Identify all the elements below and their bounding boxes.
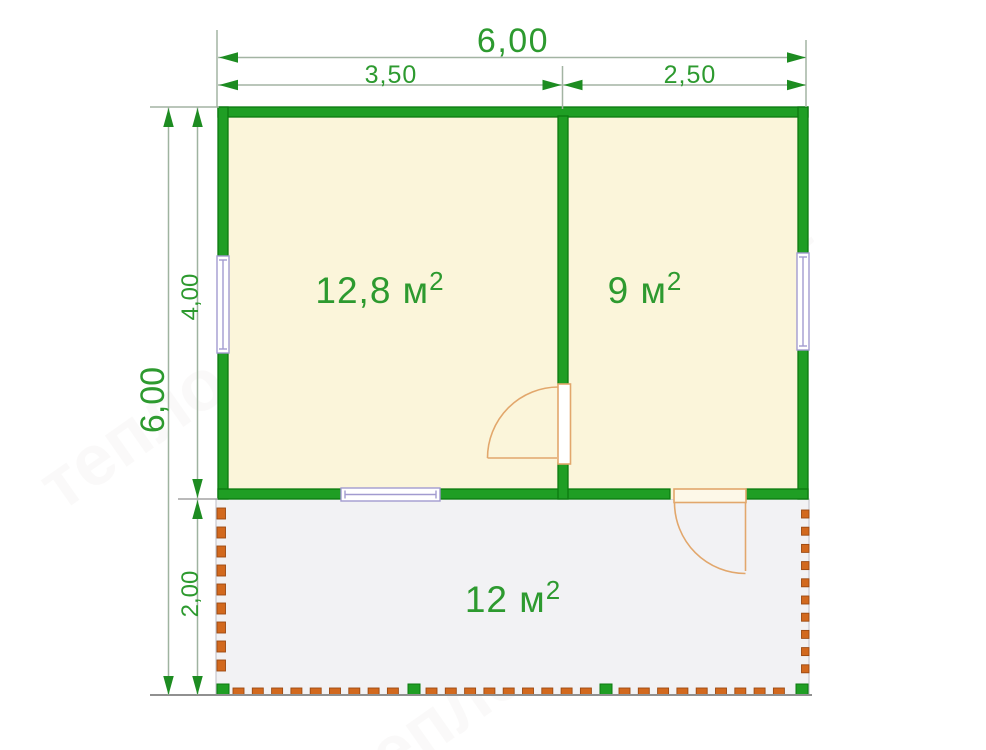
svg-text:3,50: 3,50 [365,61,418,89]
svg-text:12,8 м2: 12,8 м2 [315,266,444,311]
svg-text:6,00: 6,00 [477,22,549,60]
svg-text:2,00: 2,00 [177,571,204,618]
svg-text:6,00: 6,00 [134,367,172,433]
svg-text:4,00: 4,00 [177,274,204,321]
svg-text:2,50: 2,50 [664,61,717,89]
